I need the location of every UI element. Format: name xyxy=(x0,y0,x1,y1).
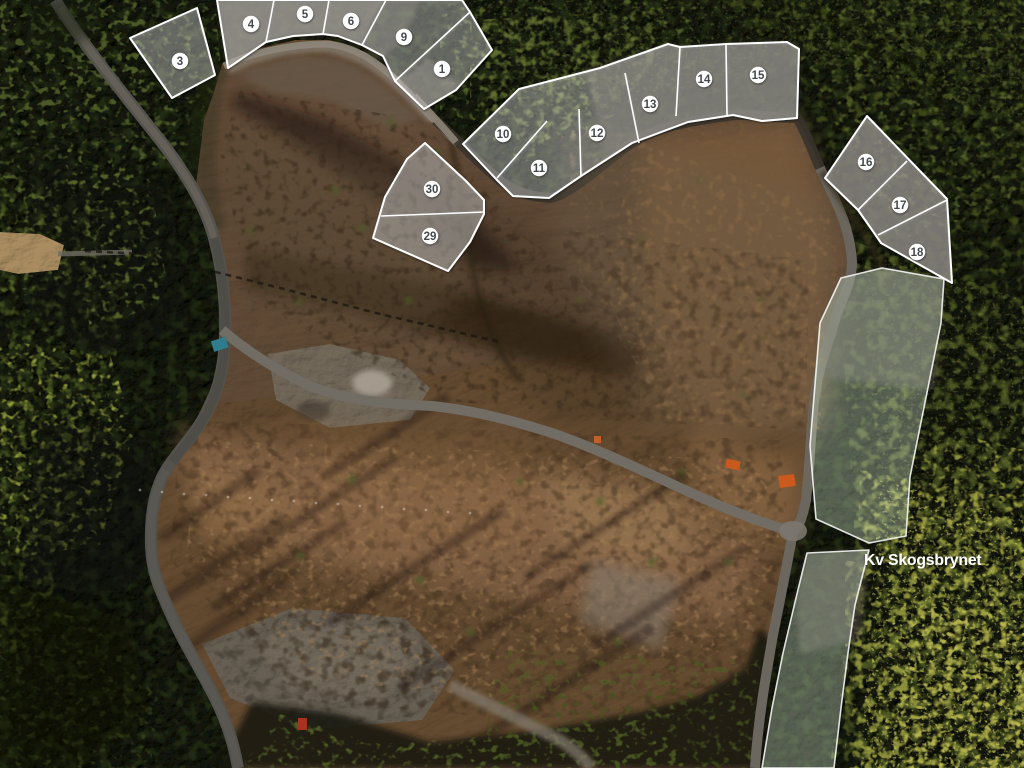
svg-text:13: 13 xyxy=(644,99,657,111)
svg-text:18: 18 xyxy=(911,247,924,259)
svg-text:30: 30 xyxy=(426,184,439,196)
svg-text:6: 6 xyxy=(348,16,354,28)
svg-text:4: 4 xyxy=(248,19,255,31)
svg-text:16: 16 xyxy=(860,157,873,169)
svg-text:17: 17 xyxy=(894,200,907,212)
svg-text:14: 14 xyxy=(698,74,711,86)
svg-text:11: 11 xyxy=(533,163,546,175)
svg-text:15: 15 xyxy=(752,70,765,82)
svg-text:3: 3 xyxy=(177,56,183,68)
svg-text:Kv Skogsbrynet: Kv Skogsbrynet xyxy=(864,552,982,569)
svg-text:9: 9 xyxy=(401,32,407,44)
svg-text:1: 1 xyxy=(439,64,446,76)
svg-text:5: 5 xyxy=(302,9,309,21)
svg-text:10: 10 xyxy=(497,129,510,141)
svg-text:12: 12 xyxy=(591,128,604,140)
svg-text:29: 29 xyxy=(424,231,437,243)
